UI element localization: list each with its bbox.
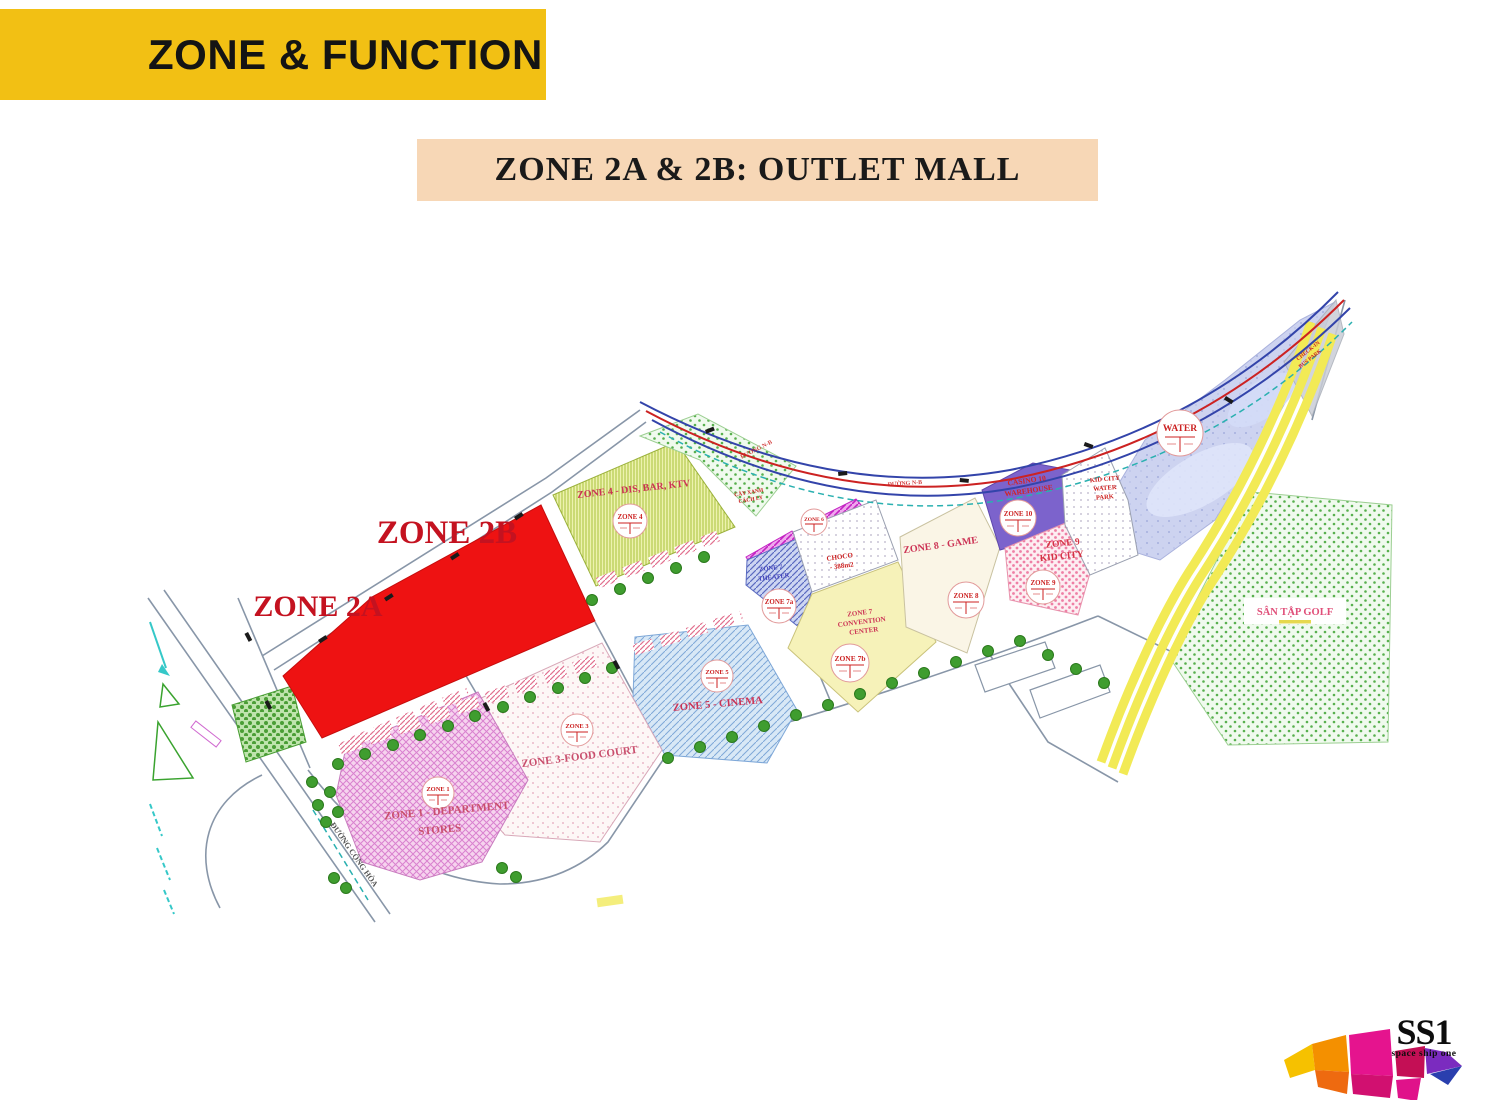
zone9-stamp: ZONE 9 xyxy=(1026,570,1060,604)
zone2b-label: ZONE 2B xyxy=(377,515,517,551)
company-logo: SS1 space ship one xyxy=(1278,1008,1478,1100)
zone5-stamp: ZONE 5 xyxy=(701,660,733,692)
svg-text:WATER: WATER xyxy=(1163,424,1197,434)
zone4-stamp: ZONE 4 xyxy=(613,504,647,538)
logo-text: SS1 xyxy=(1396,1012,1451,1052)
golf-underline xyxy=(1279,620,1311,624)
svg-text:ZONE 1: ZONE 1 xyxy=(426,786,449,793)
yellow-marker xyxy=(597,895,624,908)
svg-text:ZONE 7a: ZONE 7a xyxy=(765,598,794,606)
svg-text:ZONE 10: ZONE 10 xyxy=(1004,510,1033,518)
zone8-area xyxy=(900,498,1000,653)
svg-text:ZONE 7b: ZONE 7b xyxy=(834,654,865,663)
golf-label: SÂN TẬP GOLF xyxy=(1257,605,1333,618)
zone8-stamp: ZONE 8 xyxy=(948,582,984,618)
zone3-stamp: ZONE 3 xyxy=(561,714,593,746)
water-stamp: WATER xyxy=(1157,410,1203,456)
zone10-stamp: ZONE 10 xyxy=(1000,500,1036,536)
svg-text:ZONE 6: ZONE 6 xyxy=(804,517,824,523)
svg-text:ZONE 5: ZONE 5 xyxy=(705,669,729,676)
zone7b-stamp: ZONE 7b xyxy=(831,644,869,682)
zone6-stamp: ZONE 6 xyxy=(801,509,827,535)
svg-text:ZONE 8: ZONE 8 xyxy=(953,592,979,600)
site-plan-map: ZONE 4 ZONE 6 ZONE 7a ZONE 7b ZONE 5 ZON… xyxy=(0,0,1500,1100)
svg-text:ZONE 4: ZONE 4 xyxy=(617,513,643,521)
slide-page: ZONE & FUNCTION ZONE 2A & 2B: OUTLET MAL… xyxy=(0,0,1500,1100)
green-square xyxy=(232,686,306,762)
zone2a-label: ZONE 2A xyxy=(253,590,383,623)
survey-marks xyxy=(150,622,221,914)
zone7a-stamp: ZONE 7a xyxy=(762,589,796,623)
logo-tagline: space ship one xyxy=(1391,1049,1456,1059)
svg-text:ZONE 9: ZONE 9 xyxy=(1030,579,1056,587)
svg-text:ZONE 3: ZONE 3 xyxy=(565,723,589,730)
